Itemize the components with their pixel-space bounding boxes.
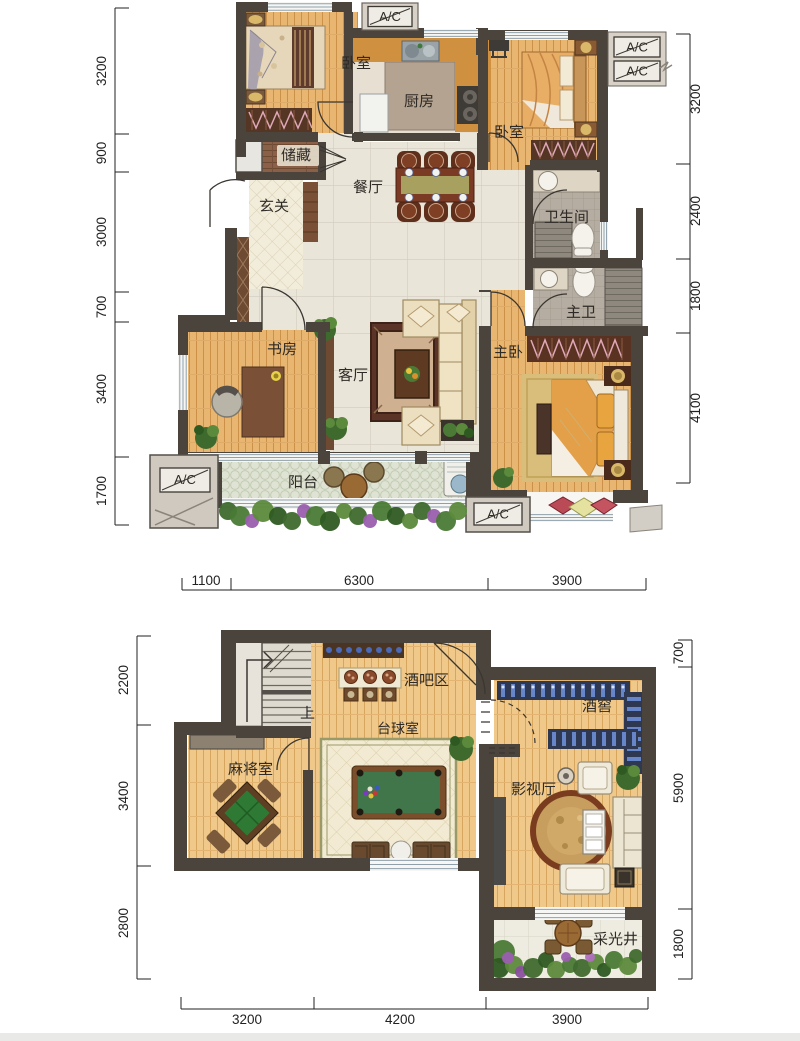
svg-text:3900: 3900 — [552, 573, 582, 588]
svg-text:1800: 1800 — [688, 281, 703, 311]
svg-text:3200: 3200 — [94, 56, 109, 86]
svg-text:3900: 3900 — [552, 1012, 582, 1027]
svg-text:2800: 2800 — [116, 908, 131, 938]
svg-text:700: 700 — [94, 296, 109, 319]
svg-text:4200: 4200 — [385, 1012, 415, 1027]
svg-text:3000: 3000 — [94, 217, 109, 247]
svg-text:3400: 3400 — [94, 374, 109, 404]
svg-text:3200: 3200 — [688, 84, 703, 114]
svg-text:1100: 1100 — [191, 573, 220, 588]
svg-text:6300: 6300 — [344, 573, 374, 588]
svg-text:2200: 2200 — [116, 665, 131, 695]
svg-text:1700: 1700 — [94, 476, 109, 506]
svg-text:700: 700 — [671, 642, 686, 665]
svg-text:900: 900 — [94, 142, 109, 165]
svg-text:3400: 3400 — [116, 781, 131, 811]
svg-text:4100: 4100 — [688, 393, 703, 423]
svg-text:2400: 2400 — [688, 196, 703, 226]
svg-text:1800: 1800 — [671, 929, 686, 959]
svg-text:3200: 3200 — [232, 1012, 262, 1027]
svg-text:5900: 5900 — [671, 773, 686, 803]
